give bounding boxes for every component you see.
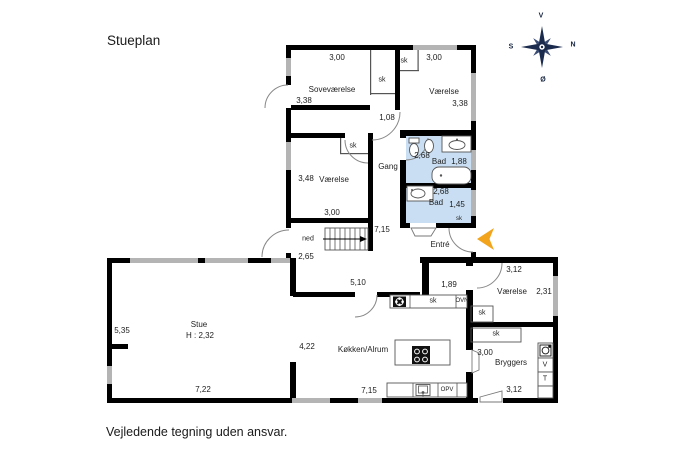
floorplan-canvas — [0, 0, 687, 457]
entry-arrow-icon — [477, 228, 494, 250]
stairs-direction-label: ned — [302, 236, 314, 243]
room-label-bad1: Bad — [432, 158, 446, 166]
room-label-entre: Entré — [430, 241, 449, 249]
dim-sovevaerelse-door: 1,08 — [379, 114, 395, 122]
dim-bryggers-bottom: 3,12 — [506, 386, 522, 394]
compass-label-oe: Ø — [540, 77, 545, 84]
room-label-sovevaerelse: Soveværelse — [309, 86, 356, 94]
washer-icon — [540, 345, 551, 356]
room-label-bad2: Bad — [429, 199, 443, 207]
dim-koekken-entry: 1,89 — [441, 281, 457, 289]
room-label-vaerelse-w: Værelse — [319, 176, 349, 184]
oven-label: OVN — [455, 298, 468, 304]
dim-bad1-right: 1,88 — [451, 158, 467, 166]
room-label-bryggers: Bryggers — [495, 359, 527, 367]
dim-vaerelse-w-left: 3,48 — [298, 175, 314, 183]
room-label-vaerelse-e: Værelse — [497, 288, 527, 296]
dim-bad1-top: 2,68 — [414, 152, 430, 160]
dim-vaerelse-ne-top: 3,00 — [426, 54, 442, 62]
closet-label-vaerelse-ne: sk — [401, 58, 408, 65]
door-leaves — [411, 228, 502, 402]
dryer-label: T — [543, 376, 547, 383]
dim-stue-left: 5,35 — [114, 327, 130, 335]
closet-label-bryggers: sk — [493, 331, 500, 338]
room-label-gang: Gang — [378, 163, 398, 171]
dim-sovevaerelse-left: 3,38 — [296, 97, 312, 105]
closet-label-gang: sk — [350, 143, 357, 150]
room-label-koekken: Køkken/Alrum — [338, 346, 388, 354]
closet-label-sovevaerelse: sk — [379, 77, 386, 84]
hob-icon — [393, 297, 406, 308]
compass-label-v: V — [539, 13, 544, 20]
cooktop-icon — [412, 346, 430, 364]
vanity-sink-icon — [442, 136, 471, 152]
bathtub-icon — [432, 167, 471, 184]
closet-label-bad2: sk — [456, 216, 462, 222]
stue-ceiling-height: H : 2,32 — [186, 332, 214, 340]
page-title: Stueplan — [107, 33, 160, 48]
dim-bad2-top: 2,68 — [433, 188, 449, 196]
dim-stue-bottom: 7,22 — [195, 386, 211, 394]
compass-label-s: S — [509, 44, 514, 51]
closet-label-vaerelse-e: sk — [479, 310, 486, 317]
dim-bad2-right: 1,45 — [449, 201, 465, 209]
dim-bryggers-left: 3,00 — [477, 349, 493, 357]
kitchen-sink-icon — [416, 385, 430, 397]
dim-koekken-top: 5,10 — [350, 279, 366, 287]
dim-koekken-left: 4,22 — [299, 343, 315, 351]
stairs — [323, 228, 368, 250]
washer-label: V — [543, 362, 548, 369]
dim-upper-left: 2,65 — [298, 253, 314, 261]
dim-sovevaerelse-top: 3,00 — [329, 54, 345, 62]
disclaimer-text: Vejledende tegning uden ansvar. — [106, 425, 287, 439]
dishwasher-label: OPV — [441, 387, 454, 393]
compass-rose-icon — [521, 26, 563, 68]
room-label-stue: Stue — [191, 321, 207, 329]
compass-label-n: N — [570, 42, 575, 49]
room-label-vaerelse-ne: Værelse — [429, 88, 459, 96]
kitchen — [387, 295, 467, 397]
floorplan-page: Stueplan Vejledende tegning uden ansvar.… — [0, 0, 687, 457]
dim-koekken-bottom: 7,15 — [361, 387, 377, 395]
dim-vaerelse-e-right: 2,31 — [536, 288, 552, 296]
dim-vaerelse-e-top: 3,12 — [506, 266, 522, 274]
dim-upper-width: 7,15 — [374, 226, 390, 234]
closet-label-koekken: sk — [430, 298, 437, 305]
dim-vaerelse-w-bottom: 3,00 — [324, 209, 340, 217]
dim-vaerelse-ne-right: 3,38 — [452, 100, 468, 108]
bryggers-appliances — [538, 343, 553, 398]
